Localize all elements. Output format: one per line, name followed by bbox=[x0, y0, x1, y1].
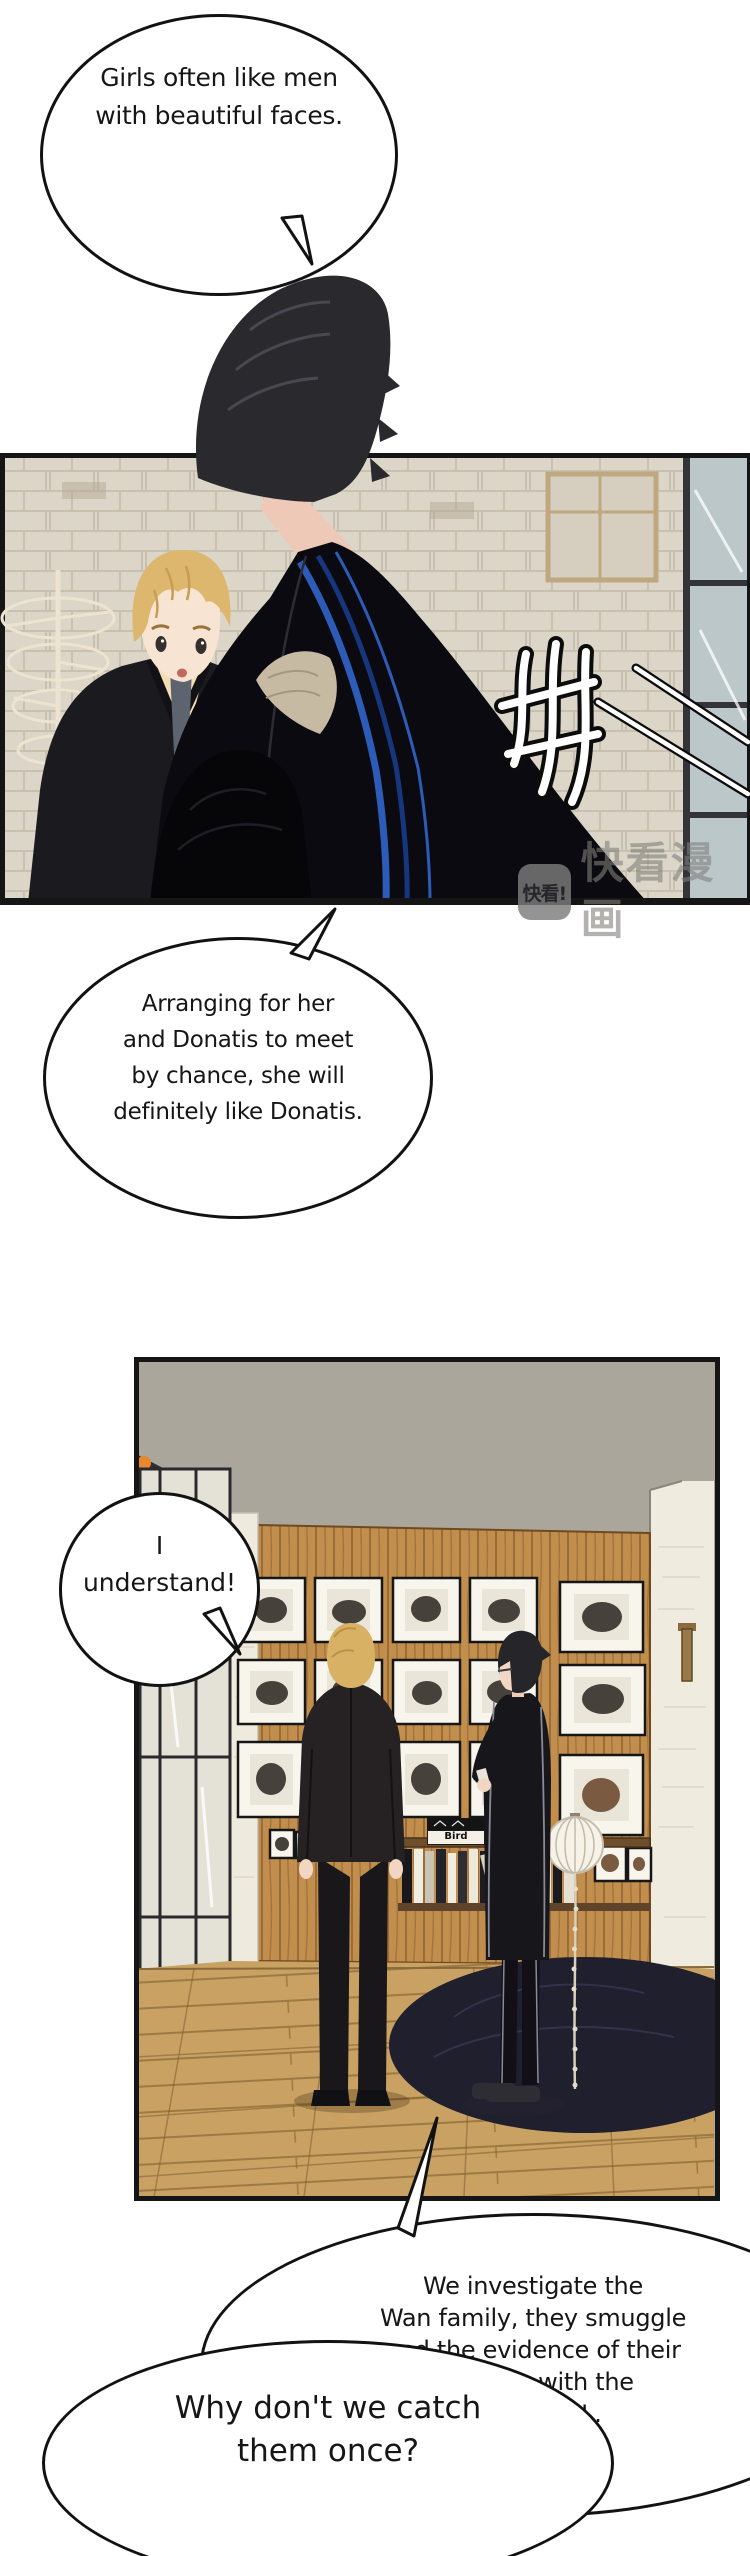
speech-text-line: We investigate the bbox=[423, 2270, 643, 2302]
speech-bubble-2: Arranging for her and Donatis to meet by… bbox=[43, 937, 433, 1219]
speech-text-line: with beautiful faces. bbox=[95, 97, 343, 135]
speech-bubble-tail bbox=[283, 903, 345, 965]
speech-text-line: I bbox=[156, 1527, 163, 1564]
speech-text-line: Arranging for her bbox=[142, 986, 334, 1022]
book-spine-label: Bird bbox=[427, 1830, 485, 1845]
speech-bubble-tail bbox=[388, 2110, 452, 2240]
speech-text-line: Wan family, they smuggle bbox=[380, 2302, 686, 2334]
speech-text-line: definitely like Donatis. bbox=[113, 1094, 362, 1130]
kuaikan-logo-badge: 快看! bbox=[518, 864, 571, 920]
speech-text-line: Girls often like men bbox=[100, 59, 338, 97]
panel-1-artwork bbox=[0, 250, 750, 908]
speech-text-line: Why don't we catch bbox=[175, 2387, 482, 2430]
speech-text-line: and Donatis to meet bbox=[123, 1022, 353, 1058]
kuaikan-watermark-text: 快看漫画 bbox=[581, 836, 750, 948]
speech-bubble-tail bbox=[192, 1604, 252, 1666]
panel-2-artwork bbox=[134, 1357, 720, 2201]
speech-text-line: by chance, she will bbox=[131, 1058, 344, 1094]
kuaikan-watermark: 快看! 快看漫画 bbox=[518, 836, 750, 948]
speech-bubble-1: Girls often like men with beautiful face… bbox=[40, 14, 398, 296]
speech-bubble-tail bbox=[272, 214, 332, 274]
speech-text-line: them once? bbox=[237, 2430, 419, 2473]
speech-text-line: understand! bbox=[83, 1564, 236, 1601]
comic-page: 快看! 快看漫画 bbox=[0, 0, 750, 2556]
